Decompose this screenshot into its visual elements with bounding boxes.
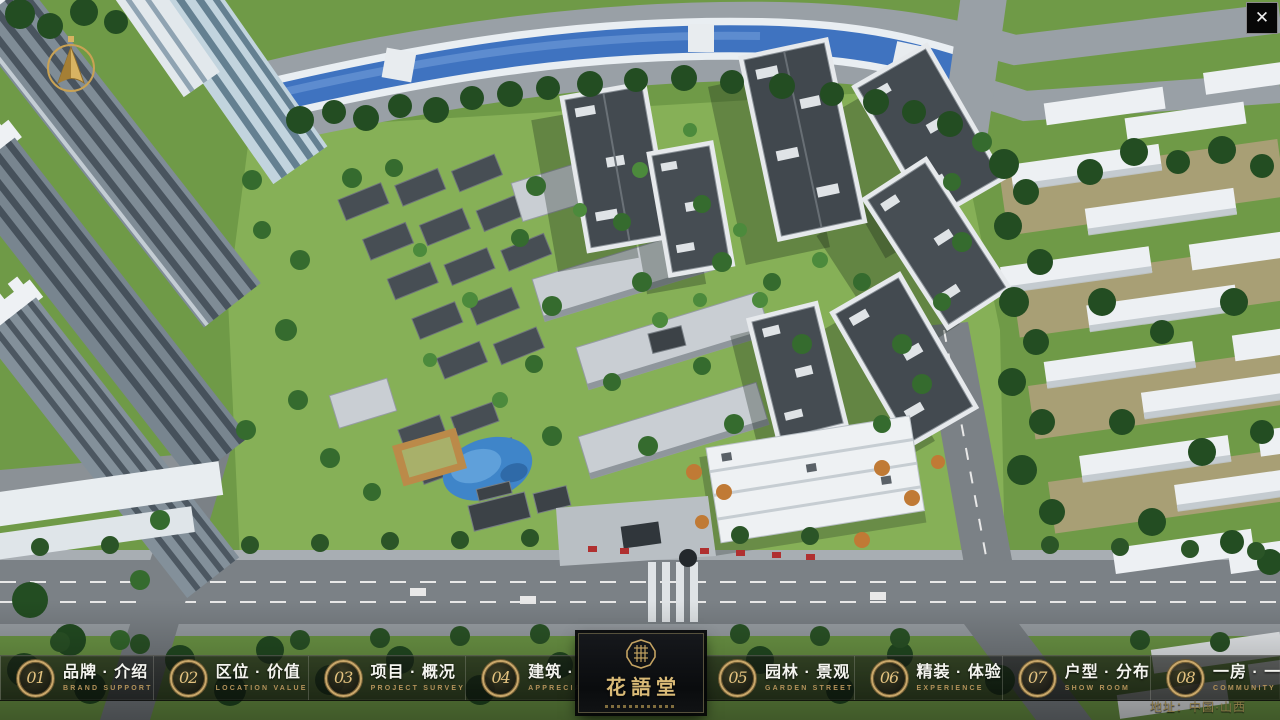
aerial-scene-view[interactable] <box>0 0 1280 720</box>
nav-item-one-room-one-view[interactable]: 08 一房 · 一景 COMMUNITY <box>1151 656 1280 700</box>
nav-item-project-survey[interactable]: 03 项目 · 概况 PROJECT SURVEY <box>309 656 466 700</box>
nav-label-cn: 品牌 · 介绍 <box>63 665 153 681</box>
nav-number: 06 <box>880 668 898 687</box>
compass-needle-shade <box>58 47 71 83</box>
nav-badge-07: 07 <box>1019 660 1056 697</box>
compass-north-tick <box>68 36 74 42</box>
seal-emblem-icon <box>626 639 656 669</box>
nav-label-cn: 户型 · 分布 <box>1065 665 1150 681</box>
nav-label-en: PROJECT SURVEY <box>371 685 465 692</box>
project-logo-title: 花語堂 <box>601 671 681 700</box>
nav-label-en: BRAND SUPPORT <box>63 685 153 692</box>
nav-badge-04: 04 <box>482 660 519 697</box>
nav-label-en: GARDEN STREET <box>765 685 854 692</box>
nav-label-cn: 一房 · 一景 <box>1213 665 1280 681</box>
nav-label-en: COMMUNITY <box>1213 685 1280 692</box>
nav-label-cn: 园林 · 景观 <box>765 665 854 681</box>
nav-badge-08: 08 <box>1167 660 1204 697</box>
nav-badge-06: 06 <box>871 660 908 697</box>
nav-number: 01 <box>26 668 44 687</box>
nav-badge-03: 03 <box>325 660 362 697</box>
nav-label-cn: 精装 · 体验 <box>917 665 1002 681</box>
logo-subtitle-line <box>605 705 677 708</box>
nav-number: 05 <box>728 668 746 687</box>
nav-badge-02: 02 <box>170 660 207 697</box>
presentation-window: ✕ 01 品牌 · 介绍 BRAND SUPPORT 02 区位 · 价值 LO… <box>0 0 1280 720</box>
compass-north-indicator[interactable] <box>42 34 100 96</box>
nav-label-cn: 区位 · 价值 <box>216 665 308 681</box>
nav-badge-05: 05 <box>719 660 756 697</box>
nav-label-en: SHOW ROOM <box>1065 685 1150 692</box>
nav-bar-left: 01 品牌 · 介绍 BRAND SUPPORT 02 区位 · 价值 LOCA… <box>0 655 578 701</box>
nav-number: 02 <box>179 668 197 687</box>
close-icon: ✕ <box>1255 8 1269 28</box>
nav-badge-01: 01 <box>17 660 54 697</box>
nav-number: 07 <box>1028 668 1046 687</box>
nav-item-floorplan-distribution[interactable]: 07 户型 · 分布 SHOW ROOM <box>1003 656 1151 700</box>
nav-item-interior-experience[interactable]: 06 精装 · 体验 EXPERIENCE <box>855 656 1003 700</box>
close-button[interactable]: ✕ <box>1246 2 1278 34</box>
nav-label-en: EXPERIENCE <box>917 685 1002 692</box>
nav-number: 03 <box>334 668 352 687</box>
project-address: 地址：中国·山西 <box>1150 698 1246 715</box>
nav-item-brand-intro[interactable]: 01 品牌 · 介绍 BRAND SUPPORT <box>0 656 154 700</box>
nav-number: 04 <box>491 668 509 687</box>
nav-bar-right: 05 园林 · 景观 GARDEN STREET 06 精装 · 体验 EXPE… <box>702 655 1280 701</box>
nav-item-garden-landscape[interactable]: 05 园林 · 景观 GARDEN STREET <box>702 656 855 700</box>
project-logo-panel[interactable]: 花語堂 <box>578 633 704 713</box>
nav-number: 08 <box>1176 668 1194 687</box>
nav-label-cn: 项目 · 概况 <box>371 665 465 681</box>
nav-label-en: LOCATION VALUE <box>216 685 308 692</box>
nav-item-location-value[interactable]: 02 区位 · 价值 LOCATION VALUE <box>154 656 309 700</box>
